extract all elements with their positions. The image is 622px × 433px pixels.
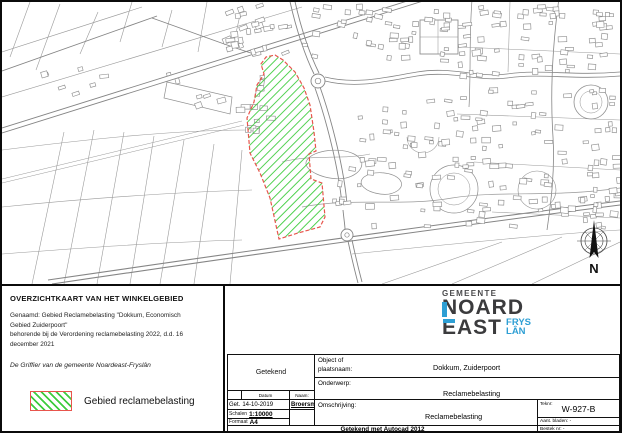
autocad-note-cell: Getekend met Autocad 2012: [227, 425, 538, 433]
info-box: OVERZICHTKAART VAN HET WINKELGEBIED Gena…: [2, 286, 225, 433]
description-line: behorende bij de Verordening reclamebela…: [10, 330, 215, 340]
bestek-cell: Bestek nr: -: [537, 425, 620, 433]
drawn-date-value: 14-10-2019: [242, 402, 273, 408]
municipality-logo: GEMEENTE NOARD EAST FRYS LÂN: [442, 289, 562, 337]
object-value: Dokkum, Zuiderpoort: [433, 363, 500, 372]
pond-outlines: [164, 20, 458, 194]
get-prefix: Get.: [229, 402, 240, 408]
legend: Gebied reclamebelasting: [30, 391, 195, 411]
compass-north-label: N: [589, 261, 598, 276]
map-canvas: N: [2, 2, 620, 284]
description-line: Genaamd: Gebied Reclamebelasting "Dokkum…: [10, 311, 215, 321]
object-label: Object of plaatsnaam:: [318, 357, 370, 374]
object-cell: Object of plaatsnaam: Dokkum, Zuiderpoor…: [314, 354, 620, 378]
drawn-by-cell: Broersma: [289, 399, 315, 410]
legend-hatch-swatch: [30, 391, 72, 411]
omschrijving-label: Omschrijving:: [318, 402, 356, 409]
north-compass: N: [577, 220, 611, 276]
onderwerp-value: Reclamebelasting: [443, 389, 500, 398]
griffier-note: De Griffier van de gemeente Noardeast-Fr…: [10, 362, 215, 369]
scale-label: Schalen: [229, 411, 247, 417]
autocad-note: Getekend met Autocad 2012: [340, 426, 424, 433]
datum-header-label: Datum: [259, 393, 273, 398]
logo-blue-bar: [443, 319, 455, 323]
sheet-count-label: Aant. bladen: -: [540, 419, 571, 424]
description-line: december 2021: [10, 340, 215, 350]
onderwerp-cell: Onderwerp: Reclamebelasting: [314, 377, 620, 400]
drawing-number-value: W-927-B: [538, 404, 619, 414]
scale-value: 1:10000: [249, 411, 272, 418]
logo-fryslan-text: FRYS LÂN: [506, 318, 531, 336]
title-block: GEMEENTE NOARD EAST FRYS LÂN: [227, 286, 620, 433]
drawing-number-cell: Teknr: W-927-B: [537, 399, 620, 418]
building-footprints: [41, 3, 620, 229]
logo-blue-stem: [442, 302, 447, 317]
zone-description: Genaamd: Gebied Reclamebelasting "Dokkum…: [10, 311, 215, 349]
topographic-map: N: [2, 2, 620, 284]
omschrijving-cell: Omschrijving: Reclamebelasting: [314, 399, 538, 426]
canal-lines: [2, 121, 244, 183]
legend-label: Gebied reclamebelasting: [84, 396, 195, 407]
getekend-cell: Getekend: [227, 354, 315, 391]
getekend-label: Getekend: [256, 369, 286, 376]
bottom-panel: OVERZICHTKAART VAN HET WINKELGEBIED Gena…: [2, 284, 620, 431]
onderwerp-label: Onderwerp:: [318, 380, 351, 387]
logo-word-east: EAST: [442, 318, 502, 338]
omschrijving-value: Reclamebelasting: [425, 412, 482, 421]
map-title: OVERZICHTKAART VAN HET WINKELGEBIED: [10, 294, 215, 303]
drawing-sheet: N OVERZICHTKAART VAN HET WINKELGEBIED Ge…: [0, 0, 622, 433]
bestek-label: Bestek nr: -: [540, 427, 565, 432]
naam-header-label: Naam:: [295, 393, 309, 398]
description-line: Gebied Zuiderpoort": [10, 321, 215, 331]
